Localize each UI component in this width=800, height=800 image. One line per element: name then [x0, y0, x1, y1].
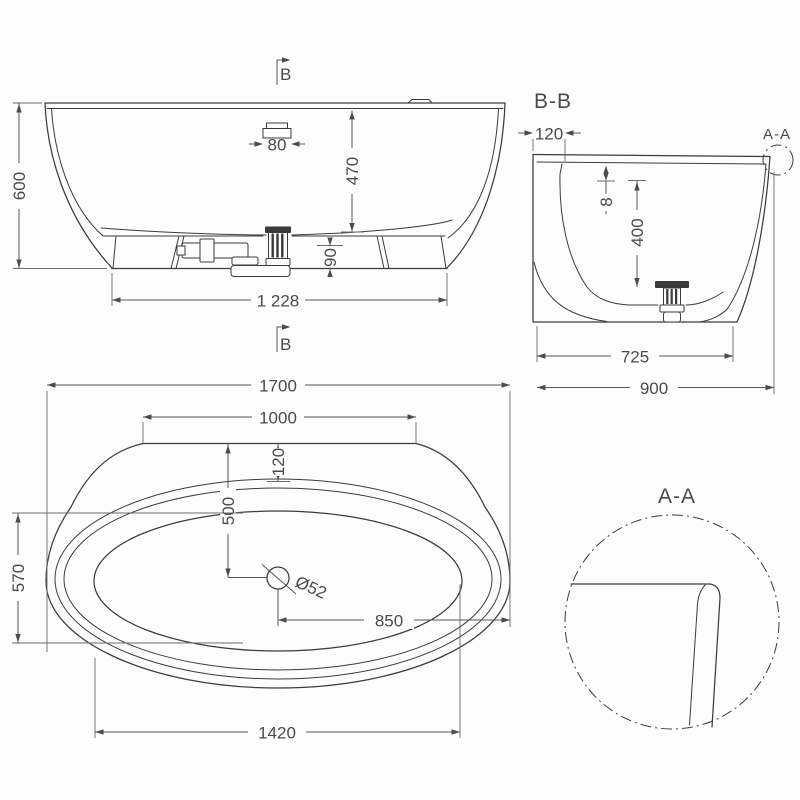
dim-outlet-label: 90	[321, 248, 340, 267]
drain-cup	[266, 259, 290, 266]
dim-overflow-label: 80	[268, 135, 287, 154]
detail-ref-circle	[763, 145, 793, 175]
dim-inner-width: 570	[9, 513, 243, 643]
bb-drain-outlet	[664, 312, 681, 322]
section-letter-top: B	[280, 65, 291, 84]
dim-inner-width-label: 570	[9, 564, 28, 592]
dim-overall-width-label: 900	[640, 379, 668, 398]
plan-view: Ø52 1700 1000 120	[9, 376, 510, 742]
dim-drain-end-label: 850	[375, 611, 403, 630]
dim-rim-thickness-label: 8	[597, 197, 616, 206]
right-foot	[377, 236, 446, 269]
detail-ref-label: A-A	[763, 126, 791, 143]
pipe-connector	[200, 239, 214, 262]
detail-rim-inner-edge	[690, 585, 706, 726]
dim-base-length: 1 228	[112, 273, 447, 310]
dim-height-label: 600	[10, 172, 29, 200]
detail-boundary-circle	[565, 515, 779, 729]
left-inner-contour	[52, 109, 104, 237]
dim-deck-offset-label: 120	[269, 448, 288, 476]
bb-rim-top	[533, 155, 770, 157]
section-letter-bottom: B	[280, 335, 291, 354]
dim-outlet-height: 90	[317, 238, 343, 278]
dim-basin-depth-label: 400	[628, 218, 647, 246]
dim-inner-depth: 470	[341, 111, 364, 233]
pipe-foot	[232, 257, 258, 265]
bb-right-outer	[737, 157, 770, 323]
bb-drain-cup	[660, 305, 684, 312]
dim-inner-length-label: 1420	[258, 723, 296, 742]
dim-rim-thickness: 8	[597, 166, 616, 215]
dim-deck-offset: 120	[267, 444, 290, 482]
bb-rim-lower	[537, 162, 766, 164]
section-mark-b-top: B	[277, 57, 291, 85]
dim-base-length-label: 1 228	[257, 291, 300, 310]
dim-overall-length-label: 1700	[259, 376, 297, 395]
bathtub-technical-drawing: 600 470 90 80	[0, 0, 800, 800]
drain-flange	[265, 227, 291, 234]
overflow-slot-top	[267, 123, 288, 129]
dim-deck-length-label: 1000	[259, 408, 297, 427]
dim-depth-label: 470	[343, 157, 362, 185]
drain-assembly-section	[655, 281, 689, 322]
dim-ledge-label: 120	[535, 124, 563, 143]
dim-deck-length: 1000	[143, 408, 416, 443]
detail-reference-aa: A-A	[763, 126, 793, 175]
section-mark-b-bottom: B	[277, 324, 291, 354]
drawing-canvas: 600 470 90 80	[0, 0, 800, 800]
detail-rim-outer-edge	[710, 584, 720, 727]
dim-deck-ledge: 120	[518, 124, 581, 161]
section-bb-title: B-B	[534, 90, 572, 113]
dim-overflow-width: 80	[249, 123, 305, 154]
bb-right-inner	[699, 164, 766, 322]
bb-drain-flange	[655, 281, 689, 288]
waste-pipe-assembly	[177, 239, 258, 265]
side-elevation-view: 600 470 90 80	[10, 57, 505, 354]
detail-aa-title: A-A	[658, 485, 696, 508]
dim-basin-depth: 400	[628, 181, 647, 288]
left-outer-contour	[45, 103, 112, 268]
dim-base-width-label: 725	[621, 347, 649, 366]
dim-drain-center-label: 500	[219, 497, 238, 525]
right-outer-contour	[447, 103, 505, 268]
dim-drain-diameter-label: Ø52	[292, 572, 329, 602]
left-foot	[113, 236, 184, 269]
drain-base-plate	[231, 266, 290, 277]
dim-base-width: 725	[537, 326, 733, 366]
plan-basin-oval	[94, 511, 462, 651]
detail-aa-view: A-A	[565, 485, 779, 729]
overflow-pipe	[182, 243, 248, 258]
bb-skirt-curve	[534, 262, 607, 322]
bb-right-floor	[686, 292, 723, 305]
pipe-end-cap	[177, 246, 185, 255]
section-bb-view: B-B 120 A-A	[518, 90, 793, 398]
right-inner-contour	[448, 109, 499, 239]
